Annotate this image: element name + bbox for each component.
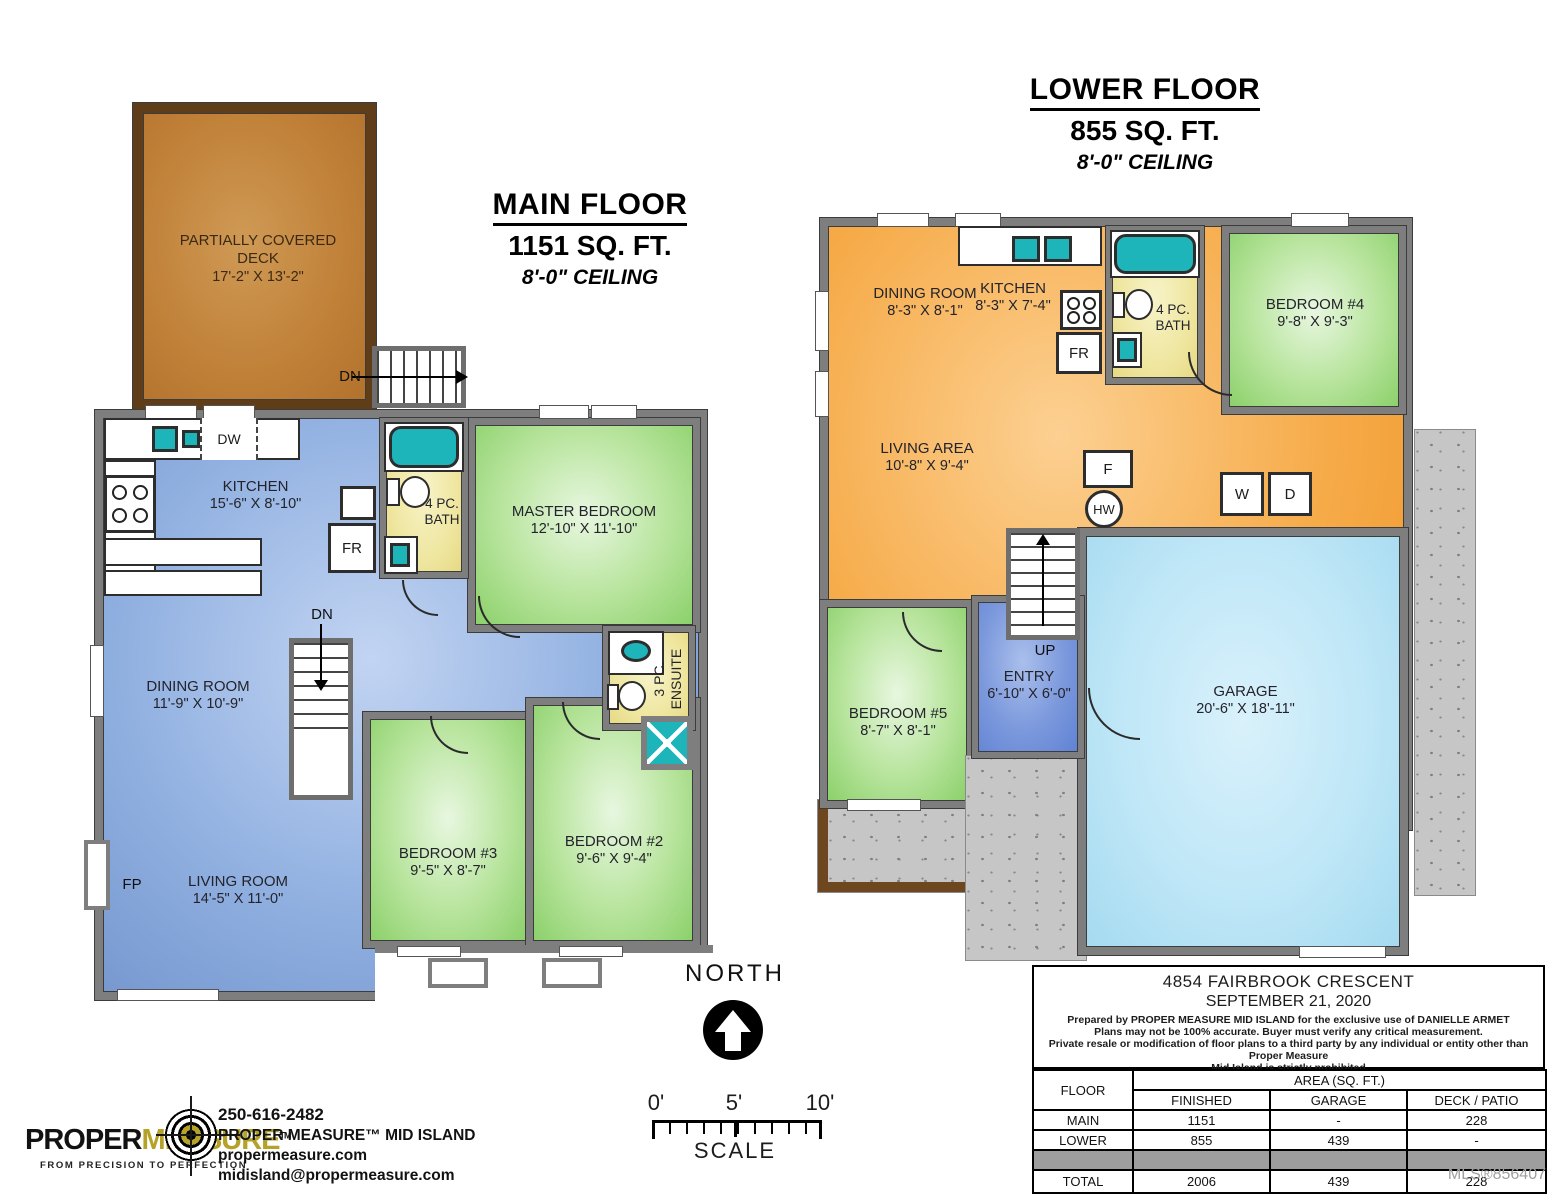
stove-burners bbox=[107, 478, 153, 530]
dryer-label: D bbox=[1285, 486, 1296, 503]
toilet-tank-lower bbox=[1112, 292, 1125, 318]
fridge-main-label: FR bbox=[342, 540, 362, 557]
lower-floor-ceiling: 8'-0" CEILING bbox=[1010, 151, 1280, 175]
mls-watermark: MLS®856407 bbox=[1398, 1166, 1546, 1184]
living-area-name: LIVING AREA bbox=[842, 440, 1012, 458]
garage-dims: 20'-6" X 18'-11" bbox=[1158, 701, 1333, 719]
dining-name: DINING ROOM bbox=[108, 678, 288, 696]
bedroom4-dims: 9'-8" X 9'-3" bbox=[1240, 314, 1390, 332]
phone-number: 250-616-2482 bbox=[218, 1104, 476, 1126]
bedroom2-label: BEDROOM #2 9'-6" X 9'-4" bbox=[533, 833, 695, 869]
main-bath-label: 4 PC. BATH bbox=[418, 496, 466, 529]
scale-tick-0: 0' bbox=[638, 1090, 674, 1116]
entry-name: ENTRY bbox=[973, 668, 1085, 686]
living-name: LIVING ROOM bbox=[148, 873, 328, 891]
area-table-garage-header: GARAGE bbox=[1270, 1090, 1407, 1110]
window bbox=[816, 292, 828, 350]
scale-ruler-end-left bbox=[652, 1120, 655, 1139]
patio-bottom bbox=[966, 756, 1086, 960]
bedroom2-name: BEDROOM #2 bbox=[533, 833, 695, 851]
dishwasher-label: DW bbox=[217, 431, 240, 447]
main-floor-title-block: MAIN FLOOR 1151 SQ. FT. 8'-0" CEILING bbox=[455, 188, 725, 290]
row-total-garage: 439 bbox=[1270, 1170, 1407, 1193]
sink-ensuite bbox=[621, 640, 651, 662]
window bbox=[398, 947, 460, 956]
stove bbox=[104, 475, 156, 533]
bedroom5-label: BEDROOM #5 8'-7" X 8'-1" bbox=[828, 705, 968, 741]
lower-kitchen-name: KITCHEN bbox=[952, 280, 1074, 298]
bedroom3-label: BEDROOM #3 9'-5" X 8'-7" bbox=[368, 845, 528, 881]
window bbox=[1292, 214, 1348, 226]
lower-floor-title: LOWER FLOOR bbox=[1030, 73, 1260, 111]
master-dims: 12'-10" X 11'-10" bbox=[470, 521, 698, 539]
lower-kitchen-label: KITCHEN 8'-3" X 7'-4" bbox=[952, 280, 1074, 316]
furnace-label: F bbox=[1103, 461, 1112, 478]
row-main-finished: 1151 bbox=[1133, 1110, 1270, 1130]
kitchen-cabinet bbox=[340, 486, 376, 520]
living-dims: 14'-5" X 11'-0" bbox=[148, 891, 328, 909]
kitchen-name: KITCHEN bbox=[168, 478, 343, 496]
lower-bath-name: 4 PC. BATH bbox=[1146, 302, 1200, 335]
row-main-deck: 228 bbox=[1407, 1110, 1546, 1130]
north-label: NORTH bbox=[665, 960, 805, 988]
lower-kitchen-sink-2 bbox=[1044, 236, 1072, 262]
ensuite-label: 3 PC. ENSUITE bbox=[651, 624, 685, 734]
fireplace-label: FP bbox=[112, 876, 152, 893]
lower-floor-area: 855 SQ. FT. bbox=[1010, 115, 1280, 147]
dryer: D bbox=[1268, 472, 1312, 516]
main-floor-ceiling: 8'-0" CEILING bbox=[455, 266, 725, 290]
logo-tagline: FROM PRECISION TO PERFECTION bbox=[40, 1160, 247, 1171]
bedroom4-label: BEDROOM #4 9'-8" X 9'-3" bbox=[1240, 296, 1390, 332]
lower-bath-label: 4 PC. BATH bbox=[1146, 302, 1200, 335]
row-lower-deck: - bbox=[1407, 1130, 1546, 1150]
bathtub-main bbox=[389, 426, 459, 468]
garage-room bbox=[1078, 528, 1408, 955]
sink-lower-bath bbox=[1117, 338, 1137, 362]
sink-main-bath bbox=[390, 543, 410, 567]
window bbox=[592, 406, 636, 418]
window bbox=[91, 646, 103, 716]
scale-tick-5: 5' bbox=[716, 1090, 752, 1116]
scale-ruler-mid bbox=[734, 1120, 737, 1137]
bedroom3-dims: 9'-5" X 8'-7" bbox=[368, 863, 528, 881]
bedroom5-room bbox=[820, 600, 974, 808]
ensuite-name: 3 PC. ENSUITE bbox=[651, 644, 685, 714]
row-lower-floor: LOWER bbox=[1033, 1130, 1133, 1150]
window bbox=[848, 800, 920, 810]
main-bath-name: 4 PC. BATH bbox=[418, 496, 466, 529]
disclaimer-1: Prepared by PROPER MEASURE MID ISLAND fo… bbox=[1034, 1014, 1543, 1026]
bedroom5-name: BEDROOM #5 bbox=[828, 705, 968, 723]
row-main-floor: MAIN bbox=[1033, 1110, 1133, 1130]
scale-ruler bbox=[652, 1120, 822, 1134]
scale-label: SCALE bbox=[680, 1138, 790, 1164]
email: midisland@propermeasure.com bbox=[218, 1166, 476, 1186]
lower-stairs-arrow-line bbox=[1042, 542, 1044, 626]
window bbox=[146, 406, 196, 418]
washer-label: W bbox=[1235, 486, 1249, 503]
window bbox=[816, 372, 828, 416]
entry-dims: 6'-10" X 6'-0" bbox=[973, 686, 1085, 704]
living-label: LIVING ROOM 14'-5" X 11'-0" bbox=[148, 873, 328, 909]
window-well-right bbox=[542, 958, 602, 988]
kitchen-peninsula-1 bbox=[104, 538, 262, 566]
lower-kitchen-sink bbox=[1012, 236, 1040, 262]
fridge-main: FR bbox=[328, 523, 376, 573]
toilet-tank-main bbox=[386, 478, 400, 506]
fridge-lower: FR bbox=[1056, 332, 1102, 374]
dining-dims: 11'-9" X 10'-9" bbox=[108, 696, 288, 714]
bedroom3-name: BEDROOM #3 bbox=[368, 845, 528, 863]
window bbox=[540, 406, 588, 418]
furnace: F bbox=[1083, 450, 1133, 488]
lower-kitchen-dims: 8'-3" X 7'-4" bbox=[952, 298, 1074, 316]
kitchen-peninsula-2 bbox=[104, 570, 262, 596]
living-area-dims: 10'-8" X 9'-4" bbox=[842, 458, 1012, 476]
garage-name: GARAGE bbox=[1158, 683, 1333, 701]
row-lower-finished: 855 bbox=[1133, 1130, 1270, 1150]
window bbox=[118, 990, 218, 1000]
up-label: UP bbox=[1020, 642, 1070, 659]
logo-crosshair-vertical bbox=[190, 1096, 192, 1176]
bedroom5-dims: 8'-7" X 8'-1" bbox=[828, 723, 968, 741]
main-dn-label: DN bbox=[300, 606, 344, 623]
row-total-floor: TOTAL bbox=[1033, 1170, 1133, 1193]
kitchen-sink bbox=[152, 426, 178, 452]
area-table-area-header: AREA (SQ. FT.) bbox=[1133, 1070, 1546, 1090]
north-arrow-icon bbox=[703, 1000, 763, 1060]
kitchen-label: KITCHEN 15'-6" X 8'-10" bbox=[168, 478, 343, 514]
window bbox=[204, 406, 254, 418]
lower-floor-title-block: LOWER FLOOR 855 SQ. FT. 8'-0" CEILING bbox=[1010, 73, 1280, 175]
deck-name: PARTIALLY COVERED DECK bbox=[178, 232, 338, 269]
table-row: LOWER 855 439 - bbox=[1033, 1130, 1546, 1150]
plan-date: SEPTEMBER 21, 2020 bbox=[1034, 993, 1543, 1011]
north-arrow-head bbox=[715, 1010, 751, 1032]
lower-deck-edge bbox=[818, 800, 976, 892]
main-stairs-arrow-line bbox=[320, 624, 322, 682]
scale-tick-10: 10' bbox=[798, 1090, 842, 1116]
kitchen-sink-2 bbox=[182, 430, 200, 448]
floor-plan-canvas: MAIN FLOOR 1151 SQ. FT. 8'-0" CEILING LO… bbox=[0, 0, 1553, 1200]
living-area-label: LIVING AREA 10'-8" X 9'-4" bbox=[842, 440, 1012, 476]
fireplace bbox=[84, 840, 110, 910]
deck-dims: 17'-2" X 13'-2" bbox=[178, 269, 338, 287]
bedroom4-name: BEDROOM #4 bbox=[1240, 296, 1390, 314]
bathtub-lower bbox=[1114, 234, 1196, 274]
table-row: MAIN 1151 - 228 bbox=[1033, 1110, 1546, 1130]
deck-label: PARTIALLY COVERED DECK 17'-2" X 13'-2" bbox=[178, 232, 338, 286]
hot-water-label: HW bbox=[1093, 502, 1115, 517]
entry-label: ENTRY 6'-10" X 6'-0" bbox=[973, 668, 1085, 704]
disclaimer-2: Plans may not be 100% accurate. Buyer mu… bbox=[1034, 1026, 1543, 1038]
dining-label: DINING ROOM 11'-9" X 10'-9" bbox=[108, 678, 288, 714]
window bbox=[878, 214, 928, 226]
hot-water-tank: HW bbox=[1085, 490, 1123, 528]
contact-block: 250-616-2482 PROPER MEASURE™ MID ISLAND … bbox=[218, 1104, 476, 1187]
website: propermeasure.com bbox=[218, 1146, 476, 1166]
toilet-bowl-ensuite bbox=[618, 681, 646, 711]
row-total-finished: 2006 bbox=[1133, 1170, 1270, 1193]
area-table-floor-header: FLOOR bbox=[1033, 1070, 1133, 1110]
fridge-lower-label: FR bbox=[1069, 345, 1089, 362]
company-name: PROPER MEASURE™ MID ISLAND bbox=[218, 1126, 476, 1146]
address: 4854 FAIRBROOK CRESCENT bbox=[1034, 972, 1543, 992]
master-name: MASTER BEDROOM bbox=[470, 503, 698, 521]
garage-door-gap bbox=[1300, 947, 1385, 957]
scale-ruler-end-right bbox=[819, 1120, 822, 1139]
kitchen-dims: 15'-6" X 8'-10" bbox=[168, 496, 343, 514]
area-table-deck-header: DECK / PATIO bbox=[1407, 1090, 1546, 1110]
main-floor-area: 1151 SQ. FT. bbox=[455, 230, 725, 262]
window bbox=[560, 947, 622, 956]
garage-label: GARAGE 20'-6" X 18'-11" bbox=[1158, 683, 1333, 719]
disclaimer-3: Private resale or modification of floor … bbox=[1034, 1038, 1543, 1062]
main-stairs-arrow-head bbox=[314, 680, 328, 691]
deck-dn-label: DN bbox=[330, 368, 370, 385]
area-table-finished-header: FINISHED bbox=[1133, 1090, 1270, 1110]
info-header-box: 4854 FAIRBROOK CRESCENT SEPTEMBER 21, 20… bbox=[1032, 965, 1545, 1069]
north-arrow-stem bbox=[725, 1031, 741, 1051]
lower-stairs-arrow-head bbox=[1036, 534, 1050, 545]
master-label: MASTER BEDROOM 12'-10" X 11'-10" bbox=[470, 503, 698, 539]
window-well-left bbox=[428, 958, 488, 988]
washer: W bbox=[1220, 472, 1264, 516]
dishwasher: DW bbox=[200, 418, 258, 460]
patio-right bbox=[1415, 430, 1475, 895]
row-lower-garage: 439 bbox=[1270, 1130, 1407, 1150]
row-main-garage: - bbox=[1270, 1110, 1407, 1130]
deck-stairs-arrow-head bbox=[456, 370, 468, 384]
main-floor-title: MAIN FLOOR bbox=[493, 188, 688, 226]
bedroom2-dims: 9'-6" X 9'-4" bbox=[533, 851, 695, 869]
window bbox=[956, 214, 1000, 226]
logo-proper-text: PROPER bbox=[25, 1124, 141, 1156]
